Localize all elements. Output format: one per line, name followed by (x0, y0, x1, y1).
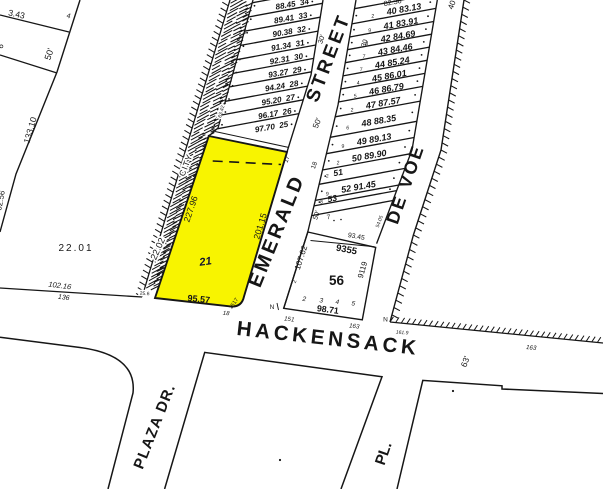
svg-text:N: N (270, 304, 275, 311)
svg-text:163: 163 (526, 344, 538, 352)
svg-text:56: 56 (329, 273, 345, 288)
svg-text:163: 163 (349, 322, 361, 330)
svg-text:53: 53 (327, 193, 338, 205)
svg-text:18: 18 (222, 311, 230, 318)
svg-text:21: 21 (198, 255, 213, 269)
svg-text:51: 51 (333, 167, 344, 179)
svg-text:151: 151 (284, 315, 295, 323)
svg-text:N: N (383, 317, 388, 324)
svg-text:22.01: 22.01 (58, 243, 93, 254)
svg-text:136: 136 (57, 294, 70, 302)
svg-text:161.9: 161.9 (396, 329, 409, 336)
